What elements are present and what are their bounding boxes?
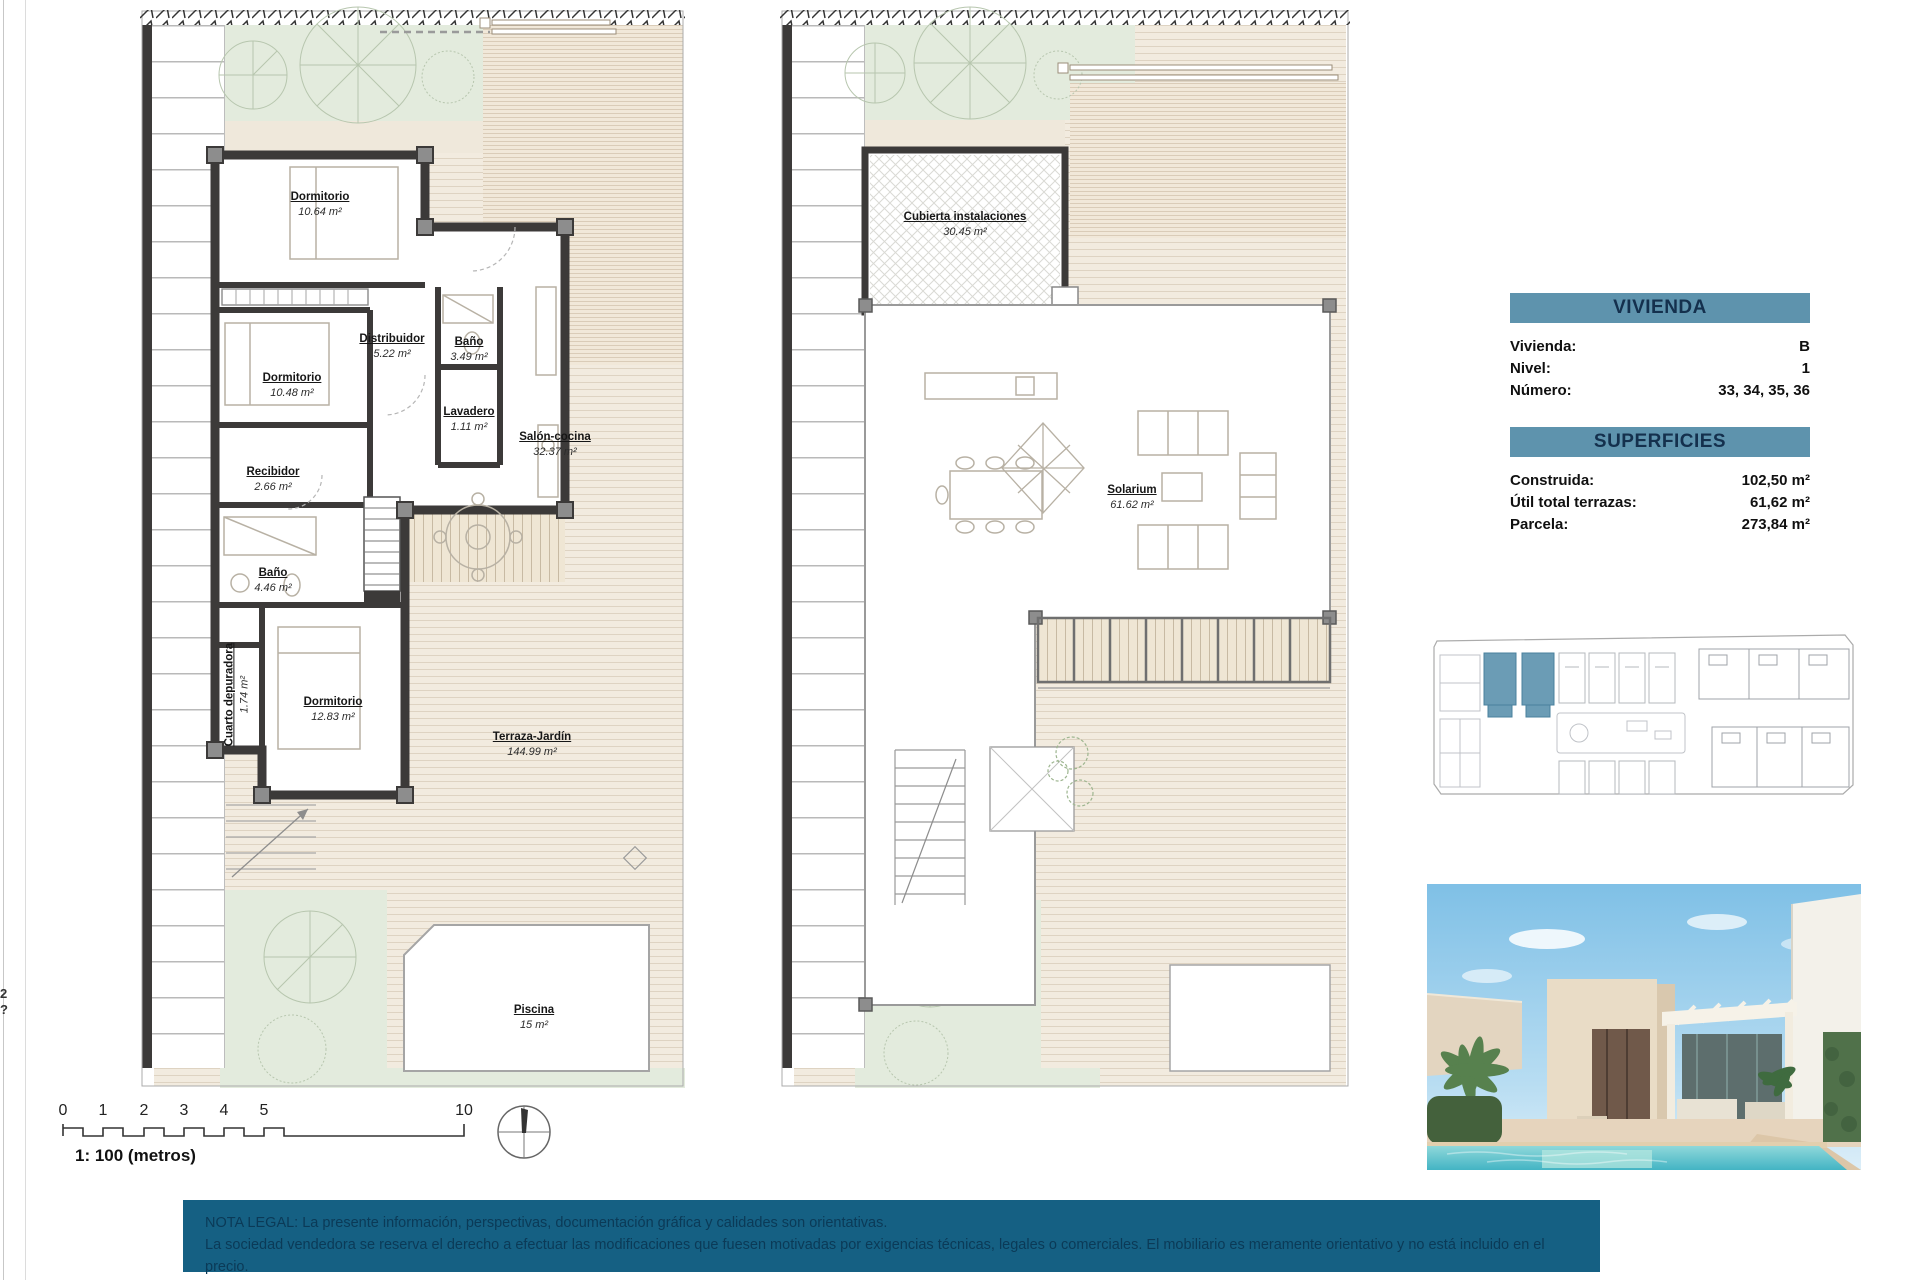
scale-tick: 5 [260,1102,269,1120]
page-edge-line [25,0,26,1280]
page-edge-line [3,0,4,1280]
ground-floor-plan: Dormitorio 10.64 m² Distribuidor 5.22 m²… [140,5,685,1090]
room-label-dormitorio-1: Dormitorio 10.64 m² [291,190,350,219]
legal-line-1: NOTA LEGAL: La presente información, per… [205,1213,1582,1235]
room-label-piscina: Piscina 15 m² [514,1003,554,1032]
room-label-lavadero: Lavadero 1.11 m² [443,405,494,434]
page-edge-marks: 2 ? [0,986,14,1017]
room-label-salon-cocina: Salón-cocina 32.37 m² [519,430,591,459]
room-label-dormitorio-3: Dormitorio 12.83 m² [304,695,363,724]
site-plan [1427,627,1861,802]
room-label-cuarto-depuradora: Cuarto depuradora 1.74 m² [222,643,251,747]
parcela-row: Parcela: 273,84 m² [1510,514,1810,536]
construida-row: Construida: 102,50 m² [1510,470,1810,492]
room-label-solarium: Solarium 61.62 m² [1107,483,1156,512]
room-label-recibidor: Recibidor 2.66 m² [246,465,299,494]
vivienda-panel-header: VIVIENDA [1510,293,1810,323]
north-compass-icon [495,1103,553,1161]
superficies-panel-header: SUPERFICIES [1510,427,1810,457]
roof-floor-plan: Cubierta instalaciones 30.45 m² Solarium… [780,5,1350,1090]
scale-steps [55,1120,485,1144]
numero-row: Número: 33, 34, 35, 36 [1510,380,1810,402]
roof-floor-drawing [780,5,1350,1090]
room-label-cubierta-instalaciones: Cubierta instalaciones 30.45 m² [904,210,1027,239]
superficies-panel-rows: Construida: 102,50 m² Útil total terraza… [1510,470,1810,536]
room-label-distribuidor: Distribuidor 5.22 m² [359,332,424,361]
legal-note-bar: NOTA LEGAL: La presente información, per… [183,1200,1600,1272]
room-label-bano-2: Baño 4.46 m² [254,566,291,595]
legal-line-2: La sociedad vendedora se reserva el dere… [205,1235,1582,1279]
room-label-terraza-jardin: Terraza-Jardín 144.99 m² [493,730,571,759]
plan-sheet: 2 ? [0,0,1920,1280]
scale-tick: 4 [220,1102,229,1120]
scale-tick: 10 [455,1102,473,1120]
ground-floor-drawing [140,5,685,1090]
nivel-row: Nivel: 1 [1510,358,1810,380]
room-label-bano-1: Baño 3.49 m² [450,335,487,364]
scale-tick: 0 [59,1102,68,1120]
scale-tick: 3 [180,1102,189,1120]
vivienda-row: Vivienda: B [1510,336,1810,358]
scale-tick: 1 [99,1102,108,1120]
room-label-dormitorio-2: Dormitorio 10.48 m² [263,371,322,400]
render-photo [1427,884,1861,1170]
util-terrazas-row: Útil total terrazas: 61,62 m² [1510,492,1810,514]
scale-tick: 2 [140,1102,149,1120]
vivienda-panel-rows: Vivienda: B Nivel: 1 Número: 33, 34, 35,… [1510,336,1810,402]
scale-caption: 1: 100 (metros) [75,1146,196,1166]
